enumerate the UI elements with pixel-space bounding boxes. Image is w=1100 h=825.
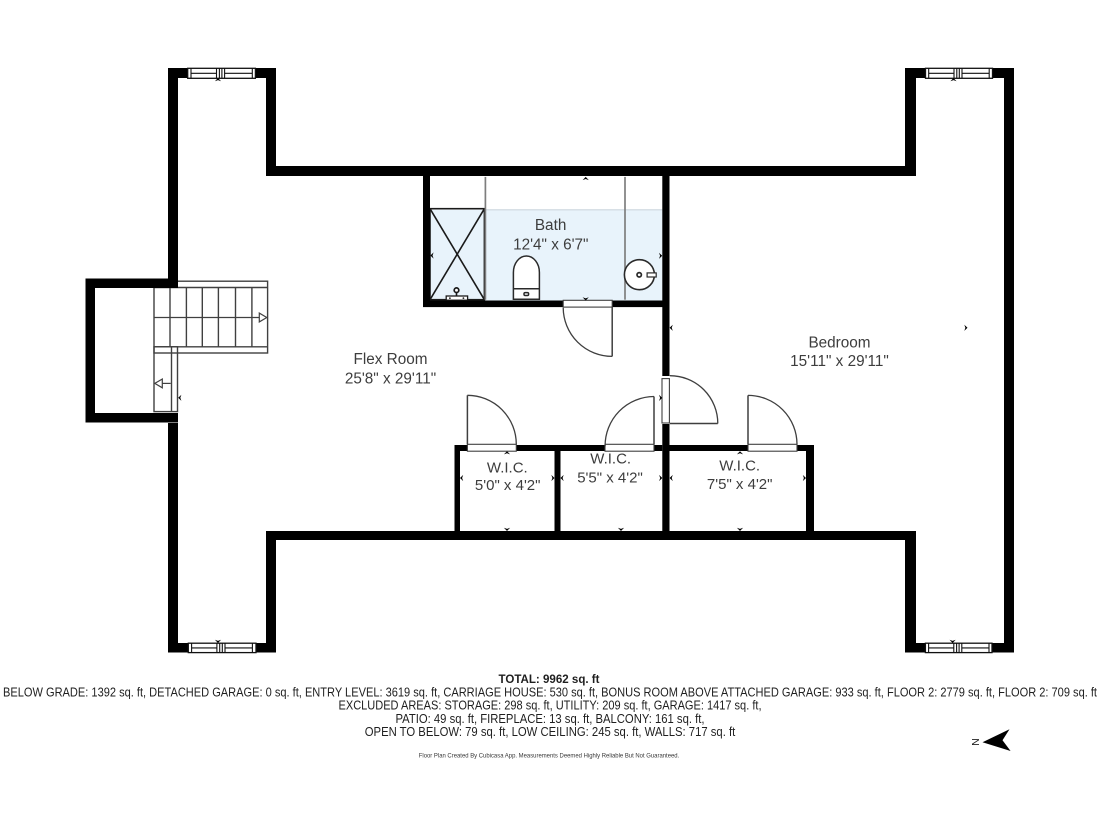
svg-text:W.I.C.: W.I.C. [590, 450, 631, 467]
svg-text:W.I.C.: W.I.C. [719, 458, 760, 475]
svg-text:5'0" x 4'2": 5'0" x 4'2" [475, 477, 541, 494]
svg-text:25'8" x 29'11": 25'8" x 29'11" [345, 371, 436, 388]
svg-text:12'4" x 6'7": 12'4" x 6'7" [513, 237, 588, 254]
svg-text:15'11" x 29'11": 15'11" x 29'11" [790, 353, 889, 370]
svg-text:OPEN TO BELOW: 79 sq. ft, LOW: OPEN TO BELOW: 79 sq. ft, LOW CEILING: 2… [365, 724, 736, 739]
svg-text:5'5" x 4'2": 5'5" x 4'2" [577, 470, 643, 487]
svg-text:Floor Plan Created By Cubicasa: Floor Plan Created By Cubicasa App. Meas… [419, 753, 680, 760]
svg-text:Bedroom: Bedroom [808, 335, 870, 352]
svg-text:N: N [969, 738, 981, 746]
svg-text:W.I.C.: W.I.C. [487, 459, 528, 476]
svg-text:7'5" x 4'2": 7'5" x 4'2" [707, 476, 773, 493]
svg-text:Flex Room: Flex Room [354, 351, 428, 368]
svg-text:Bath: Bath [535, 217, 566, 234]
